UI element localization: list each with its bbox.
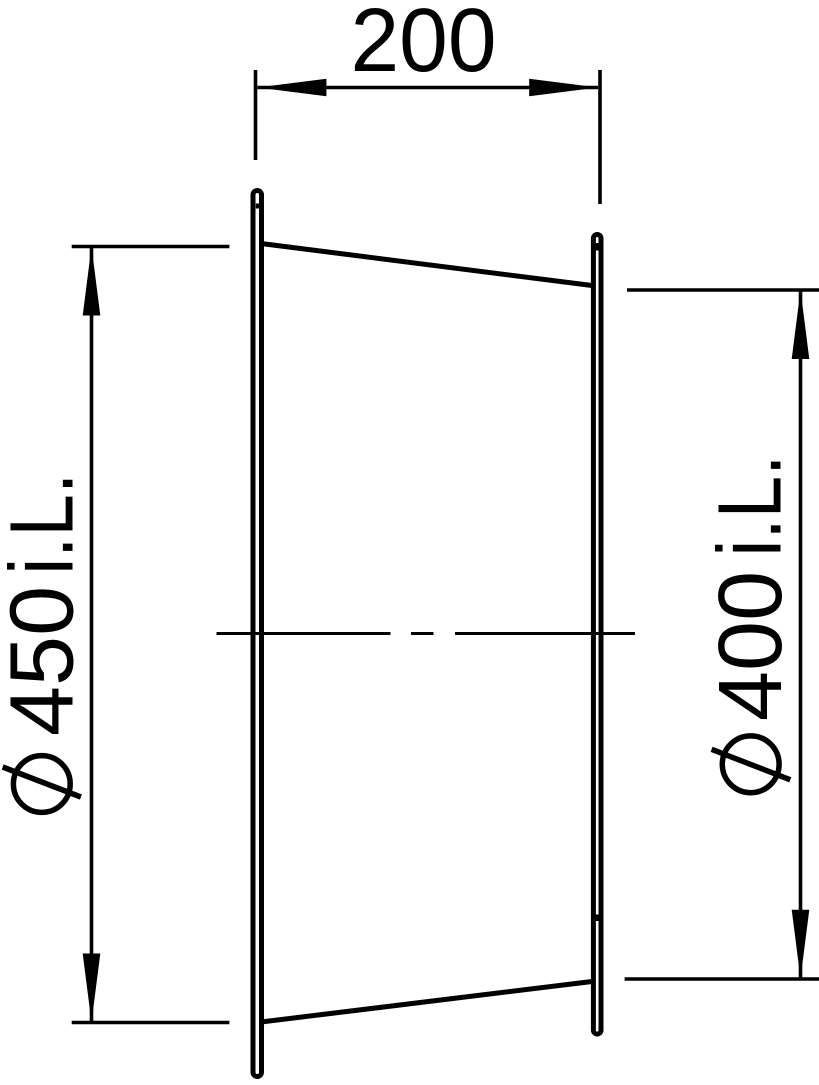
svg-text:200: 200: [351, 0, 497, 91]
svg-text:i.L.: i.L.: [0, 473, 92, 575]
svg-text:400: 400: [701, 571, 801, 721]
svg-text:i.L.: i.L.: [700, 455, 800, 557]
svg-text:450: 450: [0, 586, 92, 736]
